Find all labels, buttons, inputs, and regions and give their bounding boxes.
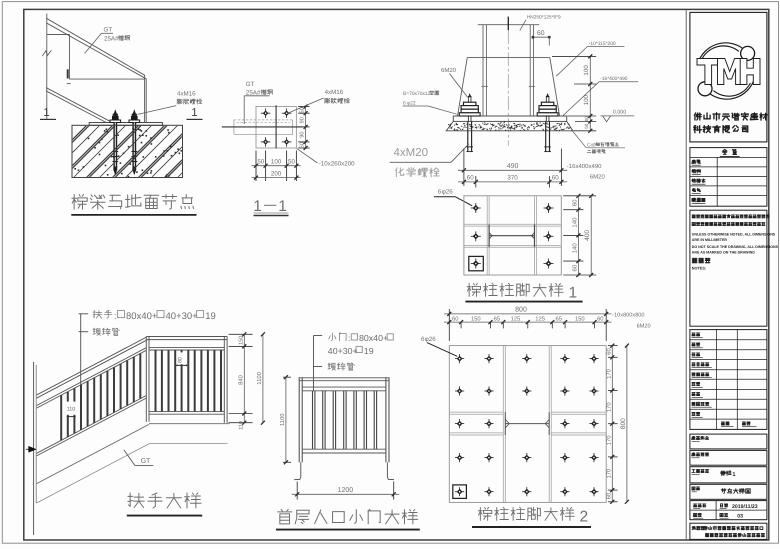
svg-text:170: 170 — [605, 369, 612, 379]
svg-text:170: 170 — [605, 402, 612, 412]
svg-text:400: 400 — [584, 230, 591, 241]
svg-text:1: 1 — [278, 198, 287, 215]
svg-text:GT: GT — [104, 27, 113, 34]
svg-text:1200: 1200 — [338, 487, 354, 494]
svg-text:DO NOT SCALE THE DRAWING, ALL: DO NOT SCALE THE DRAWING, ALL DIMENSIONS — [692, 245, 779, 249]
svg-text:60: 60 — [571, 264, 578, 271]
svg-text:60: 60 — [467, 175, 474, 182]
svg-text:φ26: φ26 — [425, 336, 436, 343]
svg-text:110: 110 — [67, 407, 76, 413]
svg-text:40+30+: 40+30+ — [166, 311, 199, 322]
svg-text:60: 60 — [605, 348, 612, 354]
svg-text:C40: C40 — [587, 143, 596, 148]
svg-text:65: 65 — [555, 315, 561, 322]
svg-text:2019/11/23: 2019/11/23 — [732, 504, 758, 510]
svg-text:HN250*125*6*9: HN250*125*6*9 — [527, 15, 561, 21]
svg-text:-10x260x200: -10x260x200 — [319, 160, 355, 167]
svg-text:170: 170 — [605, 436, 612, 446]
svg-text:60: 60 — [597, 315, 603, 322]
svg-text:40+30+: 40+30+ — [328, 346, 358, 356]
svg-text:60: 60 — [537, 30, 545, 37]
svg-text:ARE AS MARKED ON THE DRAWING: ARE AS MARKED ON THE DRAWING — [692, 250, 755, 254]
svg-text:150: 150 — [471, 315, 481, 322]
svg-text:19: 19 — [205, 311, 216, 322]
svg-text:4xM20: 4xM20 — [394, 147, 429, 159]
svg-text:GT: GT — [246, 81, 255, 88]
svg-text:60: 60 — [452, 315, 458, 322]
svg-text:80: 80 — [178, 357, 184, 363]
svg-text:65: 65 — [494, 315, 500, 322]
svg-text:125: 125 — [535, 315, 545, 322]
svg-text:1: 1 — [43, 107, 49, 119]
svg-text:-16x400x490: -16x400x490 — [567, 163, 602, 170]
svg-text:170: 170 — [605, 469, 612, 479]
svg-text:80x40+: 80x40+ — [359, 333, 388, 343]
svg-text:60: 60 — [584, 116, 589, 122]
svg-text:-10x800x800: -10x800x800 — [612, 312, 644, 318]
svg-text:100: 100 — [271, 159, 282, 166]
svg-text:03: 03 — [737, 514, 743, 520]
svg-text:100: 100 — [583, 94, 590, 105]
svg-text:110: 110 — [238, 421, 244, 430]
svg-text:50: 50 — [300, 142, 306, 148]
svg-text:ARE IN MILLIMETER: ARE IN MILLIMETER — [692, 238, 728, 242]
svg-text:125: 125 — [511, 315, 521, 322]
svg-text:1100: 1100 — [279, 413, 286, 426]
svg-text:800: 800 — [515, 306, 527, 313]
svg-text:6M20: 6M20 — [590, 173, 606, 180]
svg-text:B=70x70x12: B=70x70x12 — [403, 91, 431, 97]
svg-text:60: 60 — [605, 493, 612, 499]
svg-text:60: 60 — [552, 175, 559, 182]
svg-text:490: 490 — [507, 163, 519, 170]
svg-text::: : — [114, 311, 117, 321]
svg-text:50: 50 — [257, 159, 264, 166]
svg-text:800: 800 — [620, 418, 627, 429]
svg-text:25A#: 25A# — [104, 36, 119, 43]
svg-text:UNLESS OTHERWISE NOTED, ALL DI: UNLESS OTHERWISE NOTED, ALL DIMENSIONS — [692, 232, 776, 236]
svg-text:4xM16: 4xM16 — [325, 89, 344, 96]
svg-text:2: 2 — [580, 509, 589, 526]
svg-text:19: 19 — [364, 346, 374, 356]
svg-text::: : — [348, 333, 350, 343]
svg-text:140: 140 — [571, 243, 578, 254]
svg-text:100: 100 — [583, 65, 590, 76]
svg-text:1: 1 — [569, 285, 578, 302]
svg-text:1100: 1100 — [256, 371, 263, 384]
svg-text:1: 1 — [253, 198, 262, 215]
svg-text:840: 840 — [237, 374, 244, 385]
svg-text:NOTES:: NOTES: — [692, 266, 706, 270]
svg-text:φ26: φ26 — [442, 189, 454, 196]
svg-text:1: 1 — [732, 472, 735, 478]
svg-text:60: 60 — [571, 199, 578, 206]
svg-text:GT: GT — [141, 458, 151, 465]
svg-text:6M20: 6M20 — [441, 67, 457, 74]
svg-text:6M20: 6M20 — [637, 323, 651, 329]
svg-text:150: 150 — [238, 336, 244, 345]
svg-text:50: 50 — [288, 159, 295, 166]
svg-text:150: 150 — [575, 315, 585, 322]
svg-text:50: 50 — [584, 123, 589, 129]
svg-text:90: 90 — [300, 131, 306, 137]
svg-text:-10*115*200: -10*115*200 — [589, 41, 616, 47]
svg-text:0.000: 0.000 — [613, 109, 627, 115]
svg-text:200: 200 — [271, 171, 282, 178]
svg-text:80x40+: 80x40+ — [126, 311, 158, 322]
svg-text:-16*400*490: -16*400*490 — [600, 76, 627, 82]
svg-text:90: 90 — [300, 117, 306, 123]
svg-text:140: 140 — [571, 217, 578, 228]
svg-text:1: 1 — [191, 107, 197, 119]
svg-text:370: 370 — [507, 175, 518, 182]
svg-text:4xM16: 4xM16 — [177, 90, 196, 97]
